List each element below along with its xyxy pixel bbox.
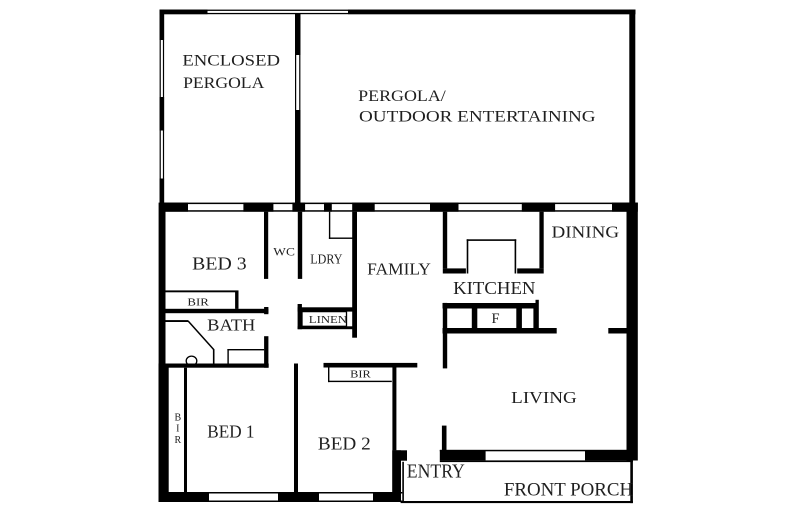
svg-text:LIVING: LIVING: [511, 388, 577, 407]
svg-text:ENTRY: ENTRY: [407, 461, 465, 482]
svg-text:BATH: BATH: [207, 316, 255, 335]
svg-text:B: B: [174, 413, 181, 424]
svg-text:WC: WC: [273, 244, 295, 258]
svg-text:BIR: BIR: [187, 296, 209, 308]
svg-text:PERGOLA: PERGOLA: [183, 75, 264, 92]
svg-text:I: I: [176, 424, 179, 435]
svg-text:R: R: [174, 435, 181, 446]
svg-text:BED 2: BED 2: [318, 433, 371, 453]
svg-text:ENCLOSED: ENCLOSED: [182, 53, 280, 70]
svg-text:BIR: BIR: [350, 369, 371, 381]
svg-text:DINING: DINING: [552, 223, 620, 242]
svg-text:FRONT PORCH: FRONT PORCH: [504, 479, 633, 500]
svg-text:LDRY: LDRY: [310, 253, 342, 268]
svg-text:BED 3: BED 3: [192, 254, 246, 274]
svg-text:KITCHEN: KITCHEN: [453, 278, 536, 298]
svg-text:OUTDOOR ENTERTAINING: OUTDOOR ENTERTAINING: [359, 108, 596, 125]
svg-text:F: F: [491, 311, 499, 327]
svg-text:PERGOLA/: PERGOLA/: [358, 88, 446, 105]
svg-text:BED 1: BED 1: [207, 422, 254, 442]
svg-text:FAMILY: FAMILY: [367, 260, 431, 279]
svg-text:LINEN: LINEN: [309, 315, 348, 326]
